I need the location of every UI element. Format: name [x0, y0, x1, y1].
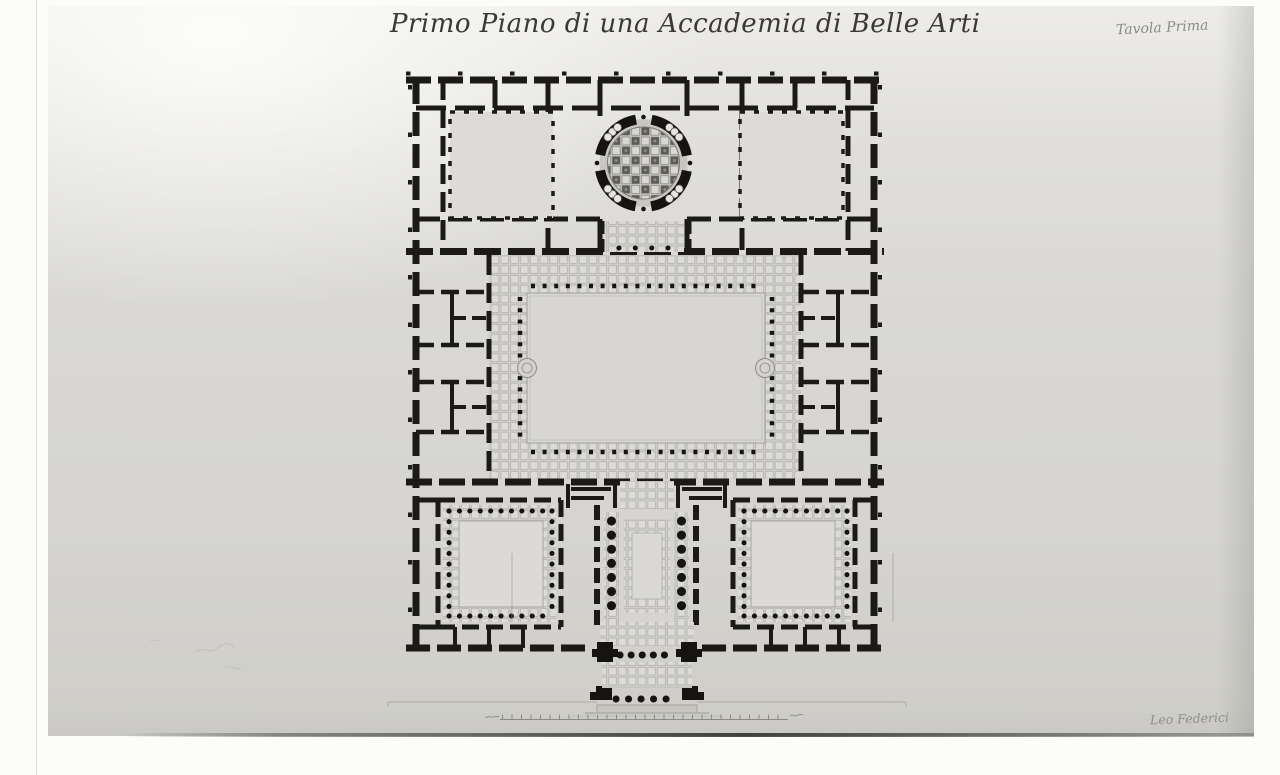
floor-plan-drawing	[0, 0, 1280, 775]
left-hall-floor	[459, 521, 543, 607]
courtyard	[527, 293, 765, 443]
courtyard-block	[406, 255, 884, 482]
pencil-scribbles	[150, 640, 241, 669]
right-hall-floor	[751, 521, 835, 607]
scale-bar	[485, 714, 803, 719]
portico-steps	[597, 705, 697, 713]
entrance-portico	[388, 622, 906, 716]
rotunda-vestibule	[595, 115, 693, 252]
stair-vestibule-coffers	[620, 481, 674, 509]
